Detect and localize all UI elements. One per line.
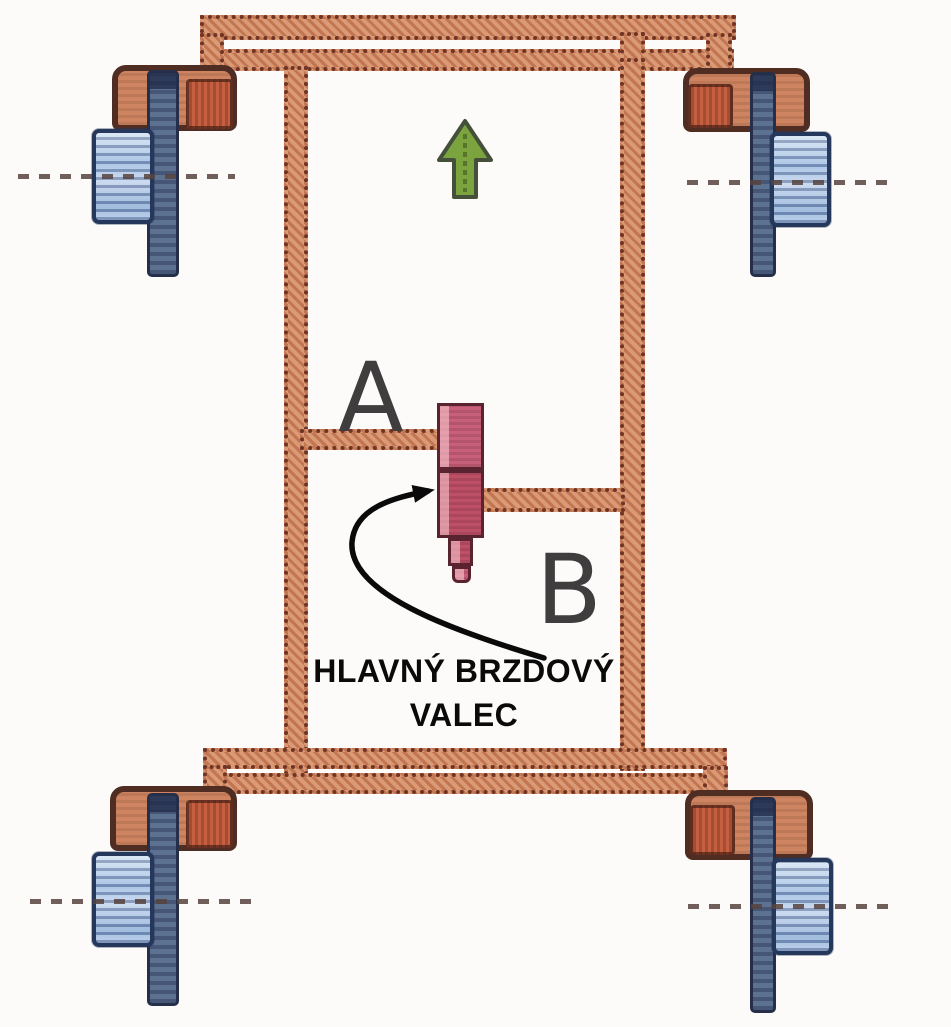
brake-system-diagram: A B HLAVNÝ BRZDOVÝ VALEC <box>0 0 951 1027</box>
brake-cylinder-block <box>690 805 735 855</box>
brake-pipe-bottom-inner <box>221 773 727 794</box>
up-arrow-icon <box>436 118 494 202</box>
axle-centerline <box>30 899 253 904</box>
brake-pipe-bottom-outer <box>203 748 727 769</box>
master-cylinder-chamber-a <box>437 403 484 470</box>
brake-cylinder-block <box>186 800 233 848</box>
brake-cylinder-block <box>186 79 233 129</box>
axle-centerline <box>18 174 235 179</box>
circuit-a-label: A <box>338 350 404 446</box>
axle-centerline <box>688 904 895 909</box>
brake-cylinder-block <box>688 84 733 128</box>
caption-line-2: VALEC <box>299 693 629 737</box>
axle-centerline <box>687 180 893 185</box>
curved-arrow-icon <box>330 465 565 675</box>
brake-pipe-top-outer <box>200 15 736 40</box>
brake-pipe-drop-front-right <box>706 33 732 73</box>
